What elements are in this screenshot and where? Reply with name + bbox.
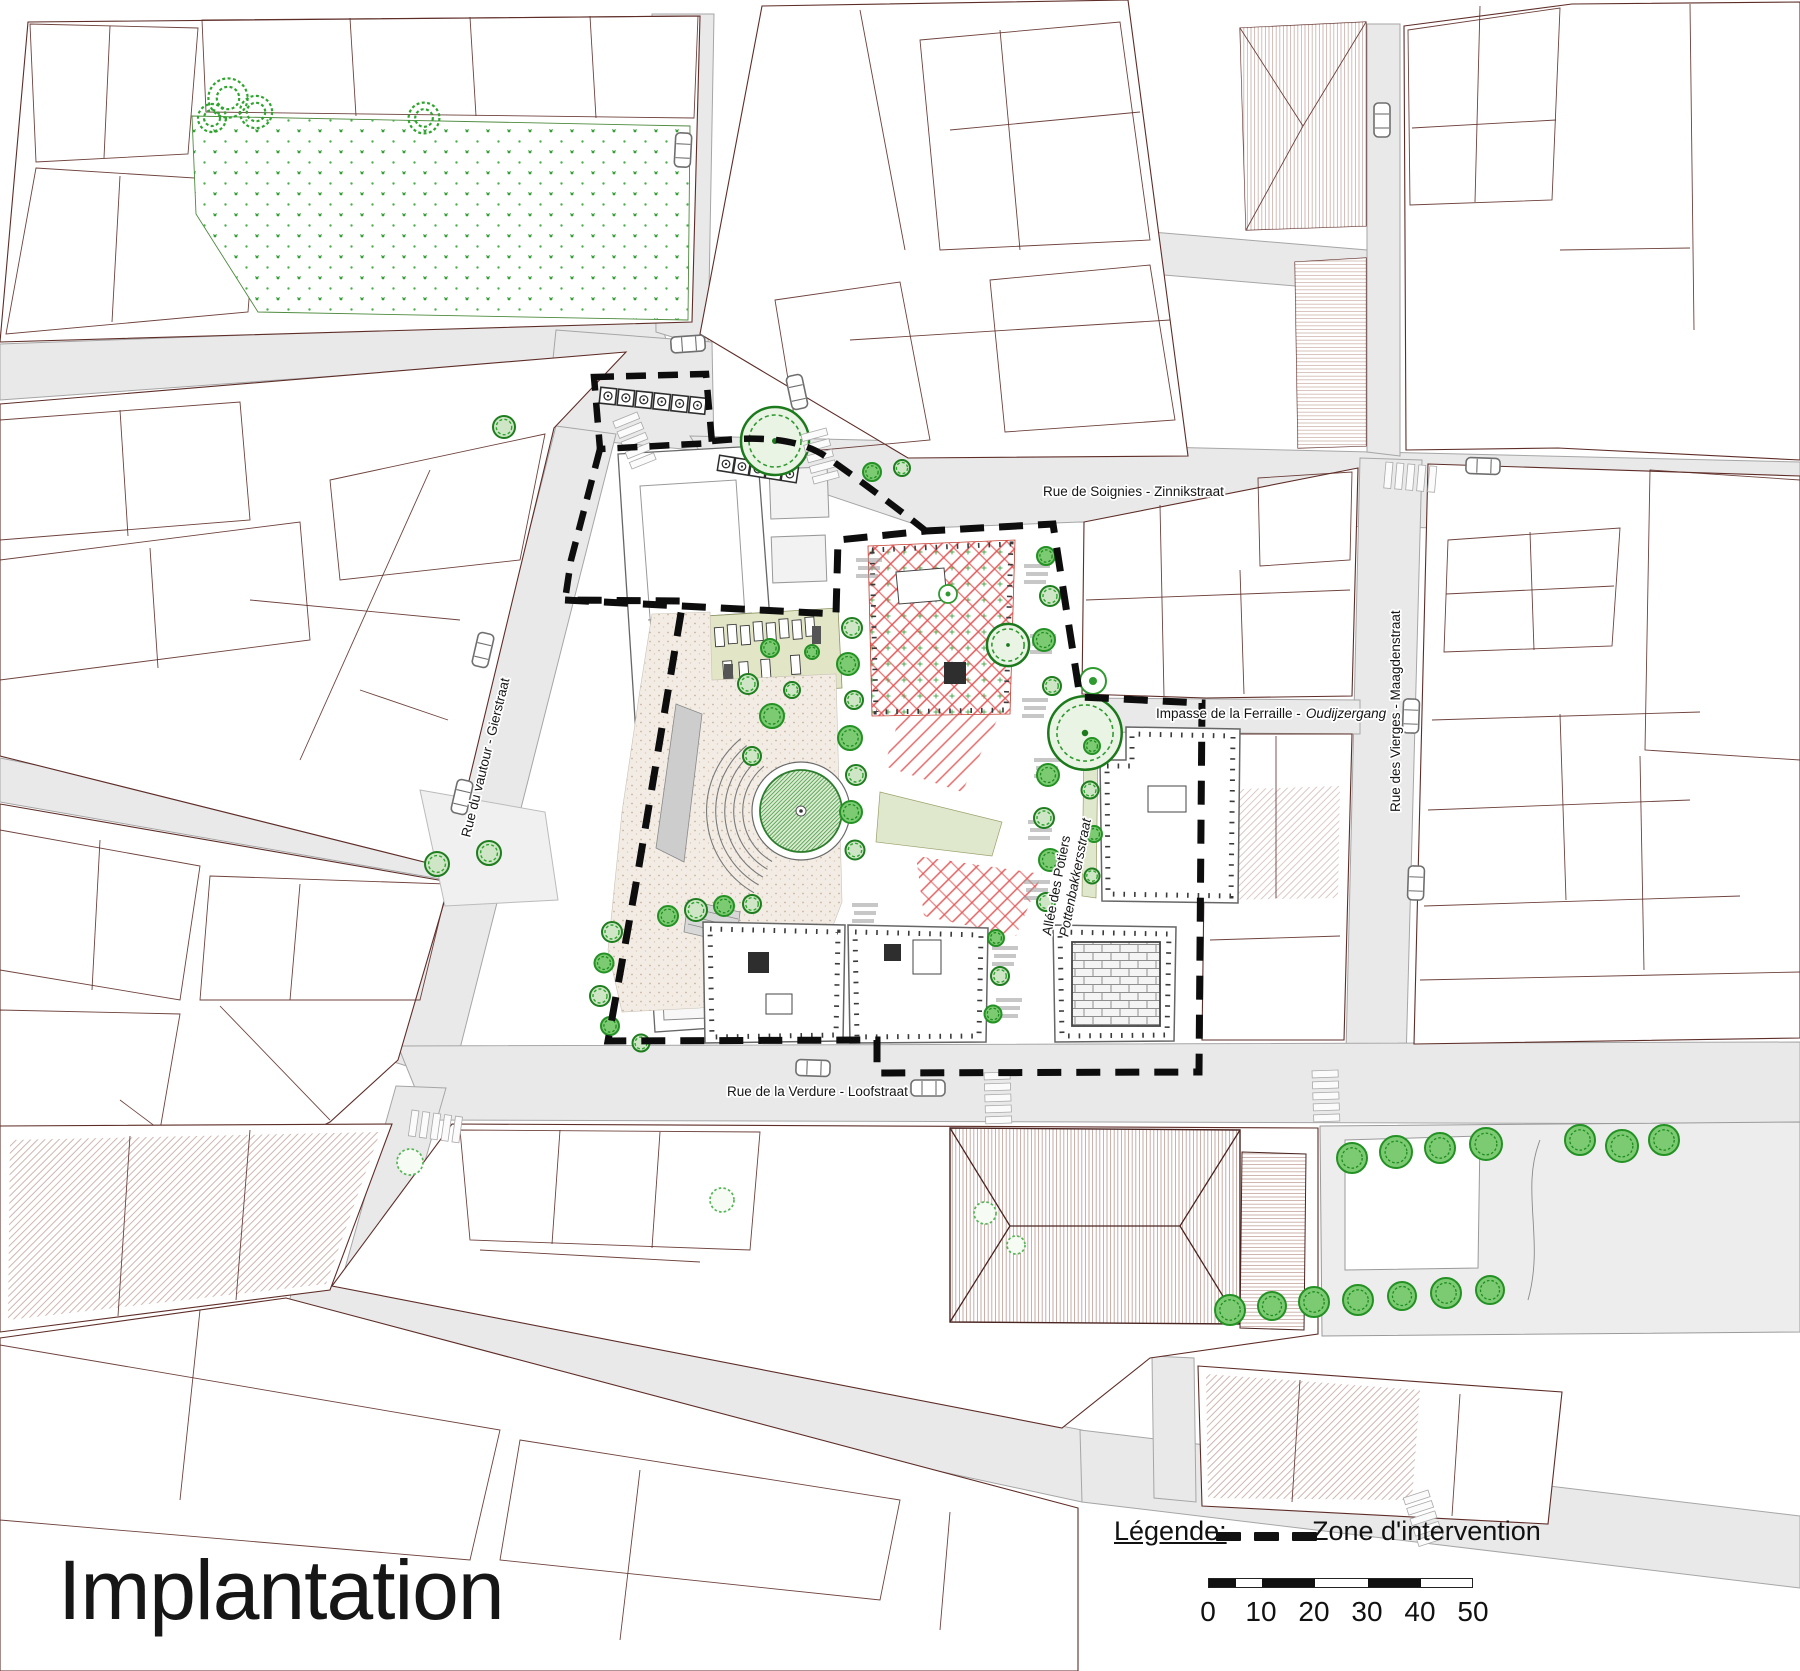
block-park xyxy=(0,16,700,342)
street-label-zinnikstraat: Rue de Soignies - Zinnikstraat xyxy=(1043,484,1224,499)
legend-heading: Légende: xyxy=(1114,1516,1227,1547)
scale-bar-ticks: 0 10 20 30 40 50 xyxy=(1208,1596,1473,1630)
street-label-maagdenstraat: Rue des Vierges - Maagdenstraat xyxy=(1388,610,1403,812)
map-canvas: Rue de Soignies - Zinnikstraat Rue du va… xyxy=(0,0,1800,1671)
green-strip xyxy=(876,792,1002,856)
block-top-center xyxy=(700,0,1188,458)
paved-square-southeast xyxy=(1053,925,1176,1042)
church-building xyxy=(950,1128,1306,1330)
street-label-loofstraat: Rue de la Verdure - Loofstraat xyxy=(727,1084,908,1099)
block-southeast xyxy=(1198,1366,1562,1524)
roundabout-planter xyxy=(1080,668,1106,694)
paved-square-southwest xyxy=(703,922,845,1043)
street-label-impasse: Impasse de la Ferraille -Oudijzergang xyxy=(1156,706,1387,721)
block-east xyxy=(1414,464,1800,1044)
block-top-right xyxy=(1240,2,1800,460)
legend-zone-label: Zone d'intervention xyxy=(1312,1516,1541,1547)
circular-lawn xyxy=(752,762,850,860)
scale-bar xyxy=(1208,1578,1473,1588)
page-title: Implantation xyxy=(58,1548,504,1632)
paved-square-east xyxy=(1100,727,1240,903)
paved-square-south-middle xyxy=(848,925,988,1043)
zone-dash-icon xyxy=(1216,1532,1317,1541)
site-plan-page: { "title": "Implantation", "legend": { "… xyxy=(0,0,1800,1671)
